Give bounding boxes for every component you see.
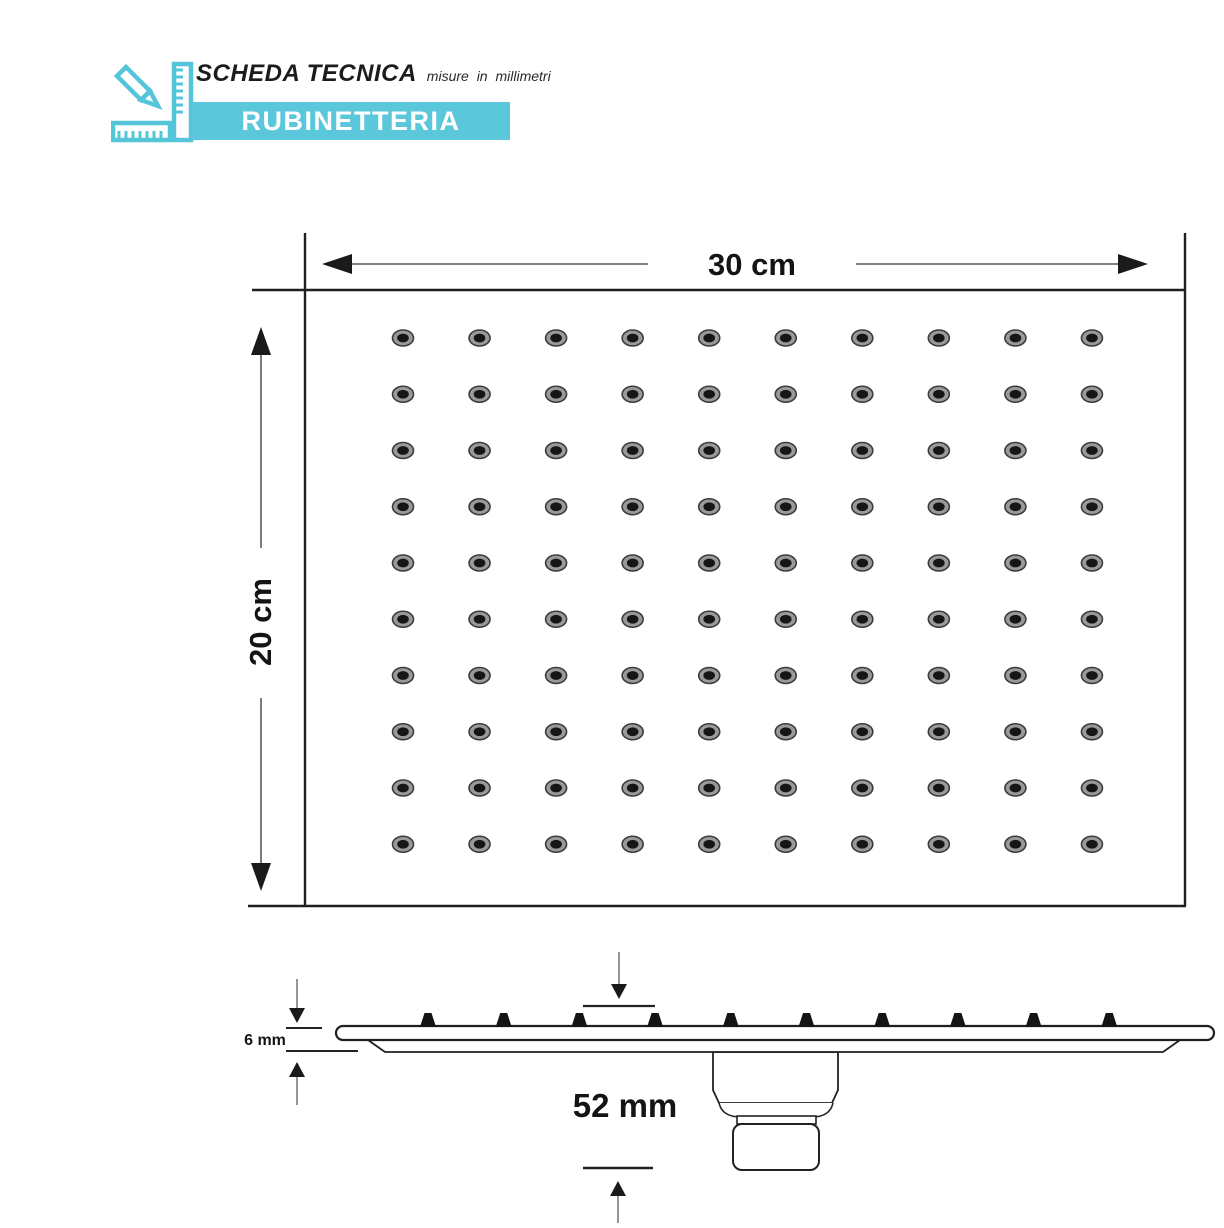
nozzle-dot-center bbox=[1010, 446, 1022, 455]
nozzle-dot-center bbox=[474, 840, 486, 849]
nozzle-dot-center bbox=[474, 390, 486, 399]
nozzle-dot-center bbox=[627, 615, 639, 624]
nozzle-dot-center bbox=[703, 446, 715, 455]
plate-slab-profile bbox=[336, 1026, 1214, 1040]
nozzle-grid bbox=[393, 330, 1103, 852]
thickness-dimension: 6 mm bbox=[244, 979, 358, 1105]
nozzle-dot-center bbox=[780, 671, 792, 680]
nozzle-dot-center bbox=[627, 784, 639, 793]
nozzle-dot-center bbox=[703, 671, 715, 680]
nozzle-dot-center bbox=[397, 502, 409, 511]
nozzle-dot-center bbox=[780, 334, 792, 343]
nozzle-dot-center bbox=[857, 671, 869, 680]
nozzle-dot-center bbox=[397, 615, 409, 624]
nozzle-dot-center bbox=[550, 334, 562, 343]
nozzle-dot-center bbox=[1010, 559, 1022, 568]
nozzle-dot-center bbox=[780, 559, 792, 568]
height-dimension: 20 cm bbox=[243, 327, 278, 891]
nozzle-dot-center bbox=[1086, 840, 1098, 849]
nozzle-dot-center bbox=[933, 502, 945, 511]
side-nozzle-tip bbox=[496, 1013, 512, 1027]
nozzle-dot-center bbox=[627, 727, 639, 736]
nozzle-dot-center bbox=[857, 784, 869, 793]
nozzle-dot-center bbox=[933, 334, 945, 343]
nozzle-dot-center bbox=[703, 615, 715, 624]
nozzle-dot-center bbox=[397, 784, 409, 793]
nozzle-dot-center bbox=[397, 390, 409, 399]
connector-nut bbox=[733, 1124, 819, 1170]
nozzle-dot-center bbox=[933, 446, 945, 455]
side-view: 6 mm 52 mm bbox=[244, 952, 1214, 1223]
nozzle-dot-center bbox=[780, 615, 792, 624]
nozzle-dot-center bbox=[550, 502, 562, 511]
nozzle-dot-center bbox=[474, 784, 486, 793]
arrow-down-icon bbox=[251, 863, 271, 891]
connector-neck bbox=[719, 1103, 833, 1117]
arrow-down-icon bbox=[289, 1008, 305, 1023]
nozzle-dot-center bbox=[1086, 502, 1098, 511]
nozzle-dot-center bbox=[550, 840, 562, 849]
nozzle-dot-center bbox=[1010, 615, 1022, 624]
nozzle-dot-center bbox=[857, 390, 869, 399]
nozzle-dot-center bbox=[1010, 390, 1022, 399]
nozzle-dot-center bbox=[550, 559, 562, 568]
nozzle-dot-center bbox=[397, 727, 409, 736]
nozzle-dot-center bbox=[397, 840, 409, 849]
nozzle-dot-center bbox=[1010, 671, 1022, 680]
nozzle-dot-center bbox=[627, 446, 639, 455]
nozzle-dot-center bbox=[780, 784, 792, 793]
nozzle-dot-center bbox=[703, 559, 715, 568]
nozzle-dot-center bbox=[780, 446, 792, 455]
nozzle-dot-center bbox=[397, 446, 409, 455]
nozzle-dot-center bbox=[550, 784, 562, 793]
arrow-down-icon bbox=[611, 984, 627, 999]
technical-sheet-page: { "header": { "icon": "pencil-ruler-icon… bbox=[0, 0, 1224, 1228]
nozzle-dot-center bbox=[780, 390, 792, 399]
width-dimension: 30 cm bbox=[322, 247, 1148, 282]
nozzle-dot-center bbox=[857, 502, 869, 511]
nozzle-dot-center bbox=[397, 334, 409, 343]
nozzle-dot-center bbox=[550, 671, 562, 680]
side-nozzle-tip bbox=[647, 1013, 663, 1027]
connector-block bbox=[713, 1052, 838, 1103]
nozzle-dot-center bbox=[1086, 784, 1098, 793]
nozzle-dot-center bbox=[627, 334, 639, 343]
nozzle-dot-center bbox=[397, 671, 409, 680]
side-nozzle-tip bbox=[571, 1013, 587, 1027]
nozzle-dot-center bbox=[857, 334, 869, 343]
nozzle-dot-center bbox=[1010, 727, 1022, 736]
nozzle-dot-center bbox=[474, 502, 486, 511]
height-dimension-label: 20 cm bbox=[243, 578, 278, 666]
nozzle-dot-center bbox=[627, 671, 639, 680]
nozzle-dot-center bbox=[627, 502, 639, 511]
nozzle-dot-center bbox=[1086, 446, 1098, 455]
side-nozzle-tip bbox=[420, 1013, 436, 1027]
side-nozzle-tip bbox=[950, 1013, 966, 1027]
nozzle-dot-center bbox=[550, 727, 562, 736]
profile-height-dimension-label: 52 mm bbox=[573, 1087, 678, 1124]
nozzle-dot-center bbox=[933, 390, 945, 399]
nozzle-dot-center bbox=[857, 727, 869, 736]
nozzle-dot-center bbox=[857, 615, 869, 624]
nozzle-dot-center bbox=[474, 615, 486, 624]
nozzle-dot-center bbox=[1086, 671, 1098, 680]
nozzle-dot-center bbox=[703, 840, 715, 849]
nozzle-dot-center bbox=[1010, 840, 1022, 849]
nozzle-dot-center bbox=[474, 559, 486, 568]
width-dimension-label: 30 cm bbox=[708, 247, 796, 282]
nozzle-dot-center bbox=[1010, 502, 1022, 511]
profile-height-dimension: 52 mm bbox=[573, 952, 678, 1223]
nozzle-dot-center bbox=[1086, 615, 1098, 624]
nozzle-dot-center bbox=[397, 559, 409, 568]
nozzle-dot-center bbox=[857, 559, 869, 568]
nozzle-dot-center bbox=[703, 784, 715, 793]
nozzle-dot-center bbox=[933, 671, 945, 680]
nozzle-dot-center bbox=[703, 334, 715, 343]
nozzle-dot-center bbox=[933, 559, 945, 568]
arrow-right-icon bbox=[1118, 254, 1148, 274]
nozzle-dot-center bbox=[474, 671, 486, 680]
technical-drawing: 30 cm 20 cm bbox=[0, 0, 1224, 1228]
nozzle-dot-center bbox=[780, 502, 792, 511]
plate-lower-profile bbox=[368, 1040, 1180, 1052]
side-nozzle-tip bbox=[723, 1013, 739, 1027]
nozzle-dot-center bbox=[1086, 390, 1098, 399]
nozzle-dot-center bbox=[703, 727, 715, 736]
nozzle-dot-center bbox=[933, 840, 945, 849]
nozzle-dot-center bbox=[780, 727, 792, 736]
nozzle-dot-center bbox=[933, 727, 945, 736]
nozzle-dot-center bbox=[1086, 727, 1098, 736]
side-nozzle-tip bbox=[874, 1013, 890, 1027]
nozzle-dot-center bbox=[1010, 334, 1022, 343]
nozzle-dot-center bbox=[857, 446, 869, 455]
nozzle-dot-center bbox=[550, 446, 562, 455]
nozzle-dot-center bbox=[703, 390, 715, 399]
side-nozzle-tip bbox=[1101, 1013, 1117, 1027]
side-nozzle-tip bbox=[1026, 1013, 1042, 1027]
nozzle-dot-center bbox=[933, 615, 945, 624]
nozzle-dot-center bbox=[857, 840, 869, 849]
nozzle-dot-center bbox=[550, 615, 562, 624]
nozzle-dot-center bbox=[550, 390, 562, 399]
nozzle-dot-center bbox=[933, 784, 945, 793]
side-nozzle-tip bbox=[799, 1013, 815, 1027]
nozzle-dot-center bbox=[474, 334, 486, 343]
nozzle-dot-center bbox=[474, 727, 486, 736]
nozzle-dot-center bbox=[703, 502, 715, 511]
nozzle-dot-center bbox=[1086, 559, 1098, 568]
nozzle-dot-center bbox=[1086, 334, 1098, 343]
connector-ring bbox=[737, 1116, 816, 1124]
thickness-dimension-label: 6 mm bbox=[244, 1032, 286, 1049]
nozzle-dot-center bbox=[627, 559, 639, 568]
face-view: 30 cm 20 cm bbox=[243, 233, 1186, 906]
arrow-up-icon bbox=[610, 1181, 626, 1196]
nozzle-dot-center bbox=[627, 390, 639, 399]
nozzle-dot-center bbox=[474, 446, 486, 455]
arrow-left-icon bbox=[322, 254, 352, 274]
nozzle-dot-center bbox=[780, 840, 792, 849]
nozzle-dot-center bbox=[627, 840, 639, 849]
arrow-up-icon bbox=[289, 1062, 305, 1077]
arrow-up-icon bbox=[251, 327, 271, 355]
nozzle-dot-center bbox=[1010, 784, 1022, 793]
